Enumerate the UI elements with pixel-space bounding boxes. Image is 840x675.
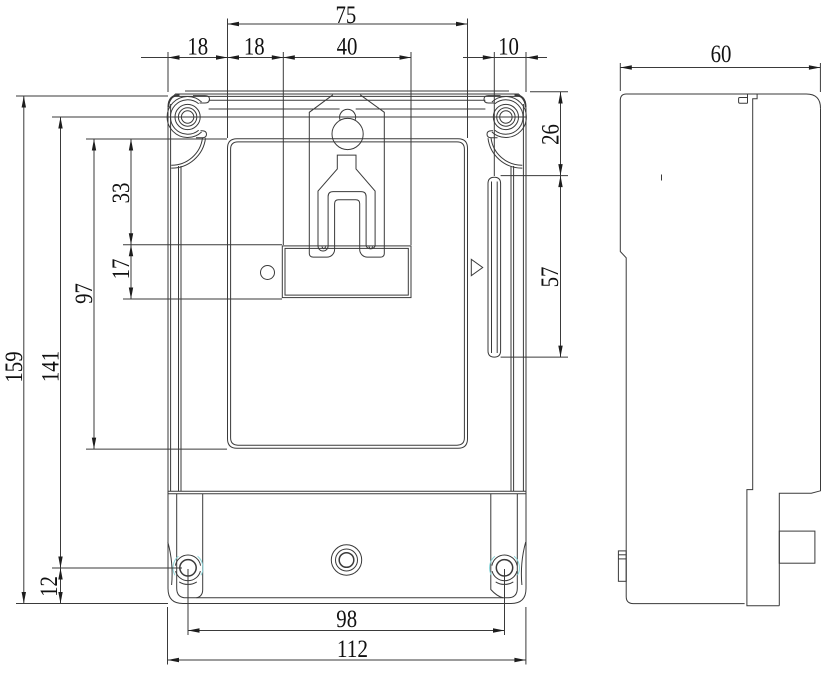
svg-text:97: 97 xyxy=(71,283,98,304)
svg-text:75: 75 xyxy=(336,2,357,29)
svg-text:57: 57 xyxy=(537,267,564,288)
svg-text:18: 18 xyxy=(187,34,208,61)
svg-text:18: 18 xyxy=(244,34,265,61)
svg-text:33: 33 xyxy=(108,183,135,204)
svg-text:10: 10 xyxy=(498,34,519,61)
svg-text:159: 159 xyxy=(1,351,28,382)
svg-text:98: 98 xyxy=(336,606,357,633)
svg-text:60: 60 xyxy=(711,41,732,68)
svg-text:40: 40 xyxy=(337,34,358,61)
svg-text:12: 12 xyxy=(36,576,63,597)
svg-text:26: 26 xyxy=(538,124,565,145)
svg-text:17: 17 xyxy=(108,259,135,280)
svg-text:141: 141 xyxy=(38,351,65,382)
svg-text:112: 112 xyxy=(337,636,368,663)
